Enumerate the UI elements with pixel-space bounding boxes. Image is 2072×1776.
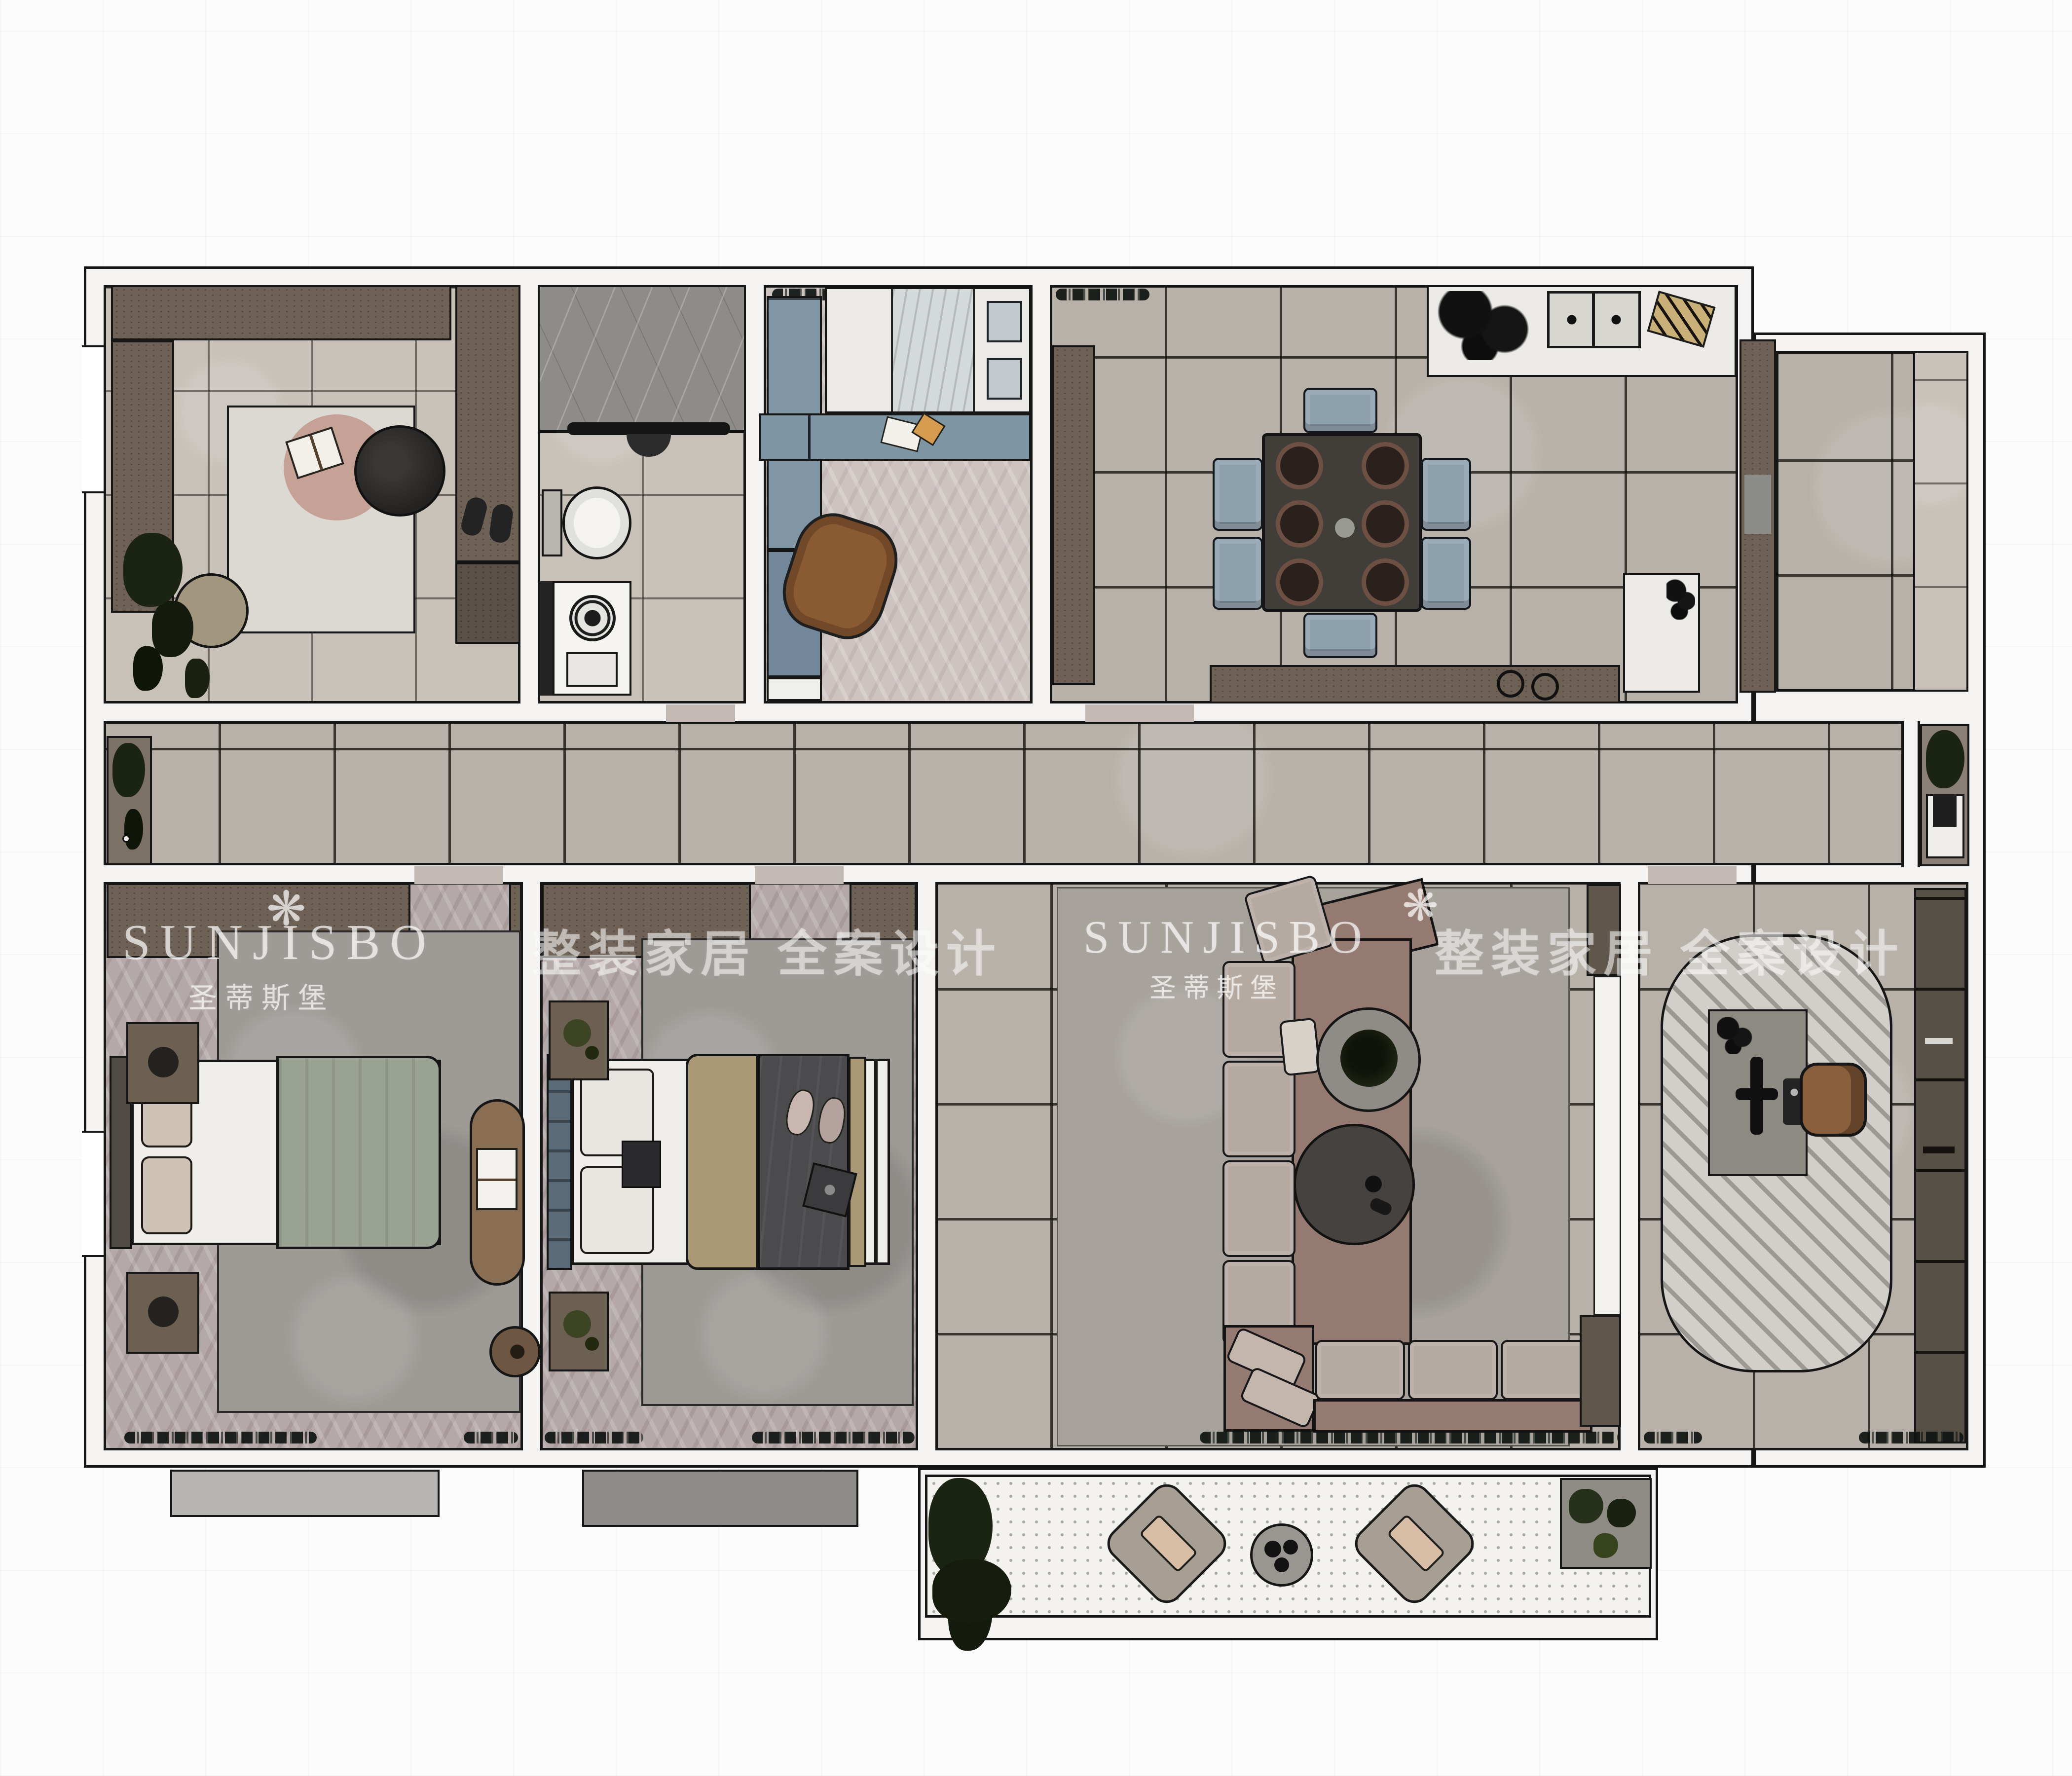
desk-lamp-base [1736, 1088, 1778, 1100]
toilet-tank [542, 489, 562, 556]
bedroom2-bed [547, 1054, 890, 1270]
cup [1264, 1541, 1281, 1557]
lounge-pillow [1139, 1514, 1198, 1573]
ac-platform-right [582, 1470, 858, 1527]
plate [1362, 442, 1409, 489]
toilet-bowl [562, 486, 631, 559]
blanket-tan [686, 1054, 759, 1270]
table-item [1365, 1176, 1382, 1192]
plant [1926, 730, 1964, 788]
balcony-table [1250, 1523, 1313, 1587]
plant-pot [563, 1019, 591, 1047]
dining-chair [1213, 458, 1263, 531]
plant [112, 743, 145, 797]
cutting-board [1647, 291, 1715, 348]
curtain [1056, 289, 1149, 300]
blanket-dark [758, 1054, 850, 1270]
shoe-cabinet [1926, 794, 1964, 858]
curtain [752, 1432, 915, 1443]
table-item [1369, 1196, 1394, 1217]
floor-plan: ❋ SUNJISBO 圣蒂斯堡 整装家居 全案设计 ❋ SUNJISBO 圣蒂斯… [0, 0, 2072, 1776]
kitchen-tall-cabinet [1739, 339, 1776, 693]
hob-ring [1497, 670, 1524, 698]
shower-fixture [567, 422, 730, 435]
cup [1274, 1557, 1289, 1572]
curtain [545, 1432, 643, 1443]
pouf [174, 573, 249, 648]
shower-area [540, 287, 744, 433]
curtain [464, 1432, 518, 1443]
bookcase [1914, 888, 1966, 1443]
kids-blanket [891, 289, 975, 411]
curtain [1859, 1432, 1963, 1443]
tablet [622, 1141, 661, 1188]
wardrobe-top [111, 285, 451, 340]
kids-bed [825, 287, 1031, 413]
sofa-bottom-back [1313, 1399, 1592, 1433]
lamp [148, 1047, 179, 1077]
cabinet-inset [1744, 475, 1771, 534]
bedroom-bench [470, 1099, 525, 1286]
plate [1276, 442, 1323, 489]
plant [1340, 1030, 1398, 1087]
kids-cabinet-base [767, 677, 822, 701]
hallway [104, 721, 1920, 865]
plant-pot [563, 1310, 591, 1338]
kitchen-counter-bottom [1210, 665, 1620, 703]
sofa-seat [1315, 1340, 1405, 1400]
fridge [1623, 573, 1700, 693]
cabinet-right-low [455, 562, 520, 644]
dining-chair [1303, 388, 1377, 433]
lamp [148, 1296, 179, 1327]
door-bathroom [666, 704, 735, 722]
sofa-seat [1408, 1340, 1498, 1400]
dining-chair [1213, 537, 1263, 610]
nightstand [549, 1292, 609, 1371]
plate [1362, 558, 1409, 606]
washer-drum [569, 595, 616, 641]
balcony-plant-mat [1560, 1478, 1652, 1569]
entry-mat [107, 736, 152, 865]
kids-pillow [987, 301, 1022, 342]
window-left-top [82, 345, 104, 493]
double-sink [1547, 291, 1641, 348]
lounge-pillow [1386, 1514, 1445, 1573]
plate [1276, 500, 1323, 548]
cooktop-items [1436, 291, 1534, 360]
book-spine [1925, 1038, 1953, 1044]
nightstand [126, 1272, 199, 1354]
niche-wall [1901, 721, 1920, 867]
door-second-bedroom [755, 866, 844, 884]
sofa-throw-pillow [1279, 1017, 1321, 1076]
sideboard [1052, 345, 1095, 685]
plate [1362, 500, 1409, 548]
cup [1283, 1540, 1298, 1554]
footboard-line [874, 1059, 878, 1265]
tv-cabinet-top [1587, 884, 1621, 976]
nightstand [126, 1022, 199, 1104]
sofa-seat [1501, 1340, 1591, 1400]
dining-chair [1303, 613, 1377, 658]
hook [122, 835, 130, 843]
door-dining [1085, 704, 1194, 722]
coffee-table-plant [1316, 1007, 1421, 1112]
plate [1276, 558, 1323, 606]
blanket-tan-edge [849, 1057, 866, 1267]
door-study [1648, 866, 1737, 884]
bean-chair [354, 425, 445, 517]
book-spine [1923, 1147, 1955, 1153]
dining-chair [1421, 458, 1471, 531]
dining-table [1262, 433, 1422, 612]
tv-cabinet-bottom [1580, 1315, 1621, 1427]
desk-plant [1717, 1017, 1753, 1054]
plant [1569, 1489, 1603, 1523]
sofa-cushion [1222, 1160, 1295, 1257]
sofa-cushion [1222, 1061, 1295, 1157]
coffee-table-dark [1294, 1124, 1415, 1245]
curtain [1200, 1432, 1618, 1443]
blanket [276, 1056, 441, 1249]
kids-pillow [987, 358, 1022, 400]
window-left-master [82, 1131, 104, 1257]
top-balcony-side-strip [1913, 353, 1966, 690]
pillow [141, 1156, 192, 1234]
kitchen-counter-top [1427, 285, 1737, 377]
fridge-top-item [1666, 578, 1695, 620]
headboard [547, 1054, 572, 1270]
study-desk [1708, 1009, 1808, 1176]
ac-platform-left [170, 1470, 440, 1517]
side-table [489, 1326, 541, 1377]
washer-door [566, 652, 618, 687]
center-dish [1335, 518, 1355, 538]
nightstand [549, 1000, 609, 1080]
study-chair [1800, 1063, 1867, 1137]
curtain [124, 1432, 317, 1443]
cabinet-item [1933, 794, 1957, 827]
washing-machine [553, 581, 631, 696]
washing-machine-cabinet [540, 581, 554, 696]
hob-ring [1531, 673, 1559, 701]
dining-chair [1421, 537, 1471, 610]
tv-board [1593, 976, 1621, 1315]
door-master [414, 866, 503, 884]
curtain [1644, 1432, 1702, 1443]
book [476, 1148, 518, 1210]
entry-niche [1920, 724, 1969, 866]
